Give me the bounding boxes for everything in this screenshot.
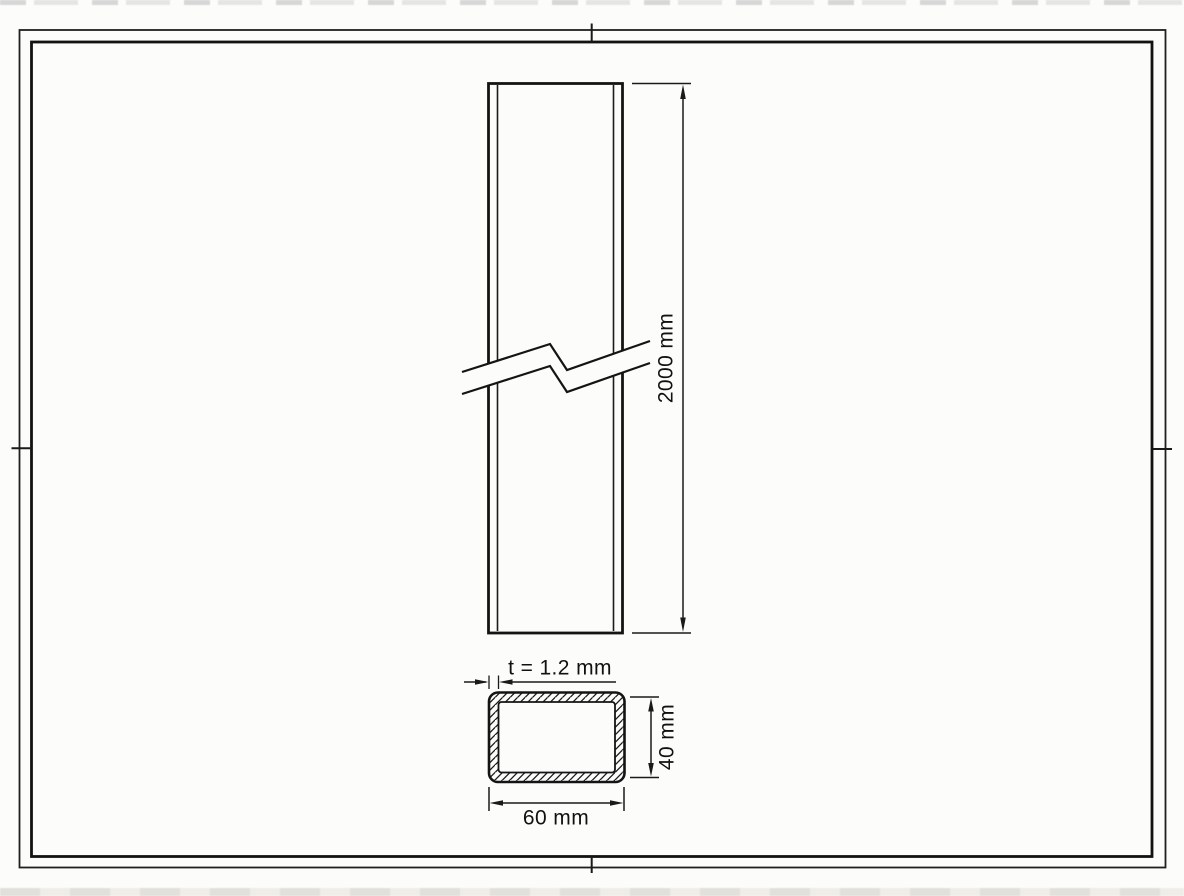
arrow-left-icon — [499, 679, 513, 684]
arrow-right-icon — [475, 679, 489, 684]
thickness-dimension-label: t = 1.2 mm — [508, 658, 612, 679]
arrow-up-icon — [680, 85, 686, 100]
drawing-sheet: 2000 mm t = 1.2 mm 40 mm 60 mm — [0, 0, 1184, 896]
arrow-down-icon — [648, 763, 654, 777]
arrow-right-icon — [610, 800, 624, 806]
section-inner-wall — [499, 702, 616, 773]
arrow-down-icon — [680, 618, 686, 633]
arrow-left-icon — [490, 800, 504, 806]
width-dimension-label: 60 mm — [523, 808, 589, 829]
cross-section-view — [464, 676, 659, 812]
technical-drawing-svg — [0, 0, 1184, 896]
height-dimension-label: 40 mm — [657, 704, 678, 770]
arrow-up-icon — [648, 698, 654, 712]
length-dimension-label: 2000 mm — [656, 313, 677, 403]
